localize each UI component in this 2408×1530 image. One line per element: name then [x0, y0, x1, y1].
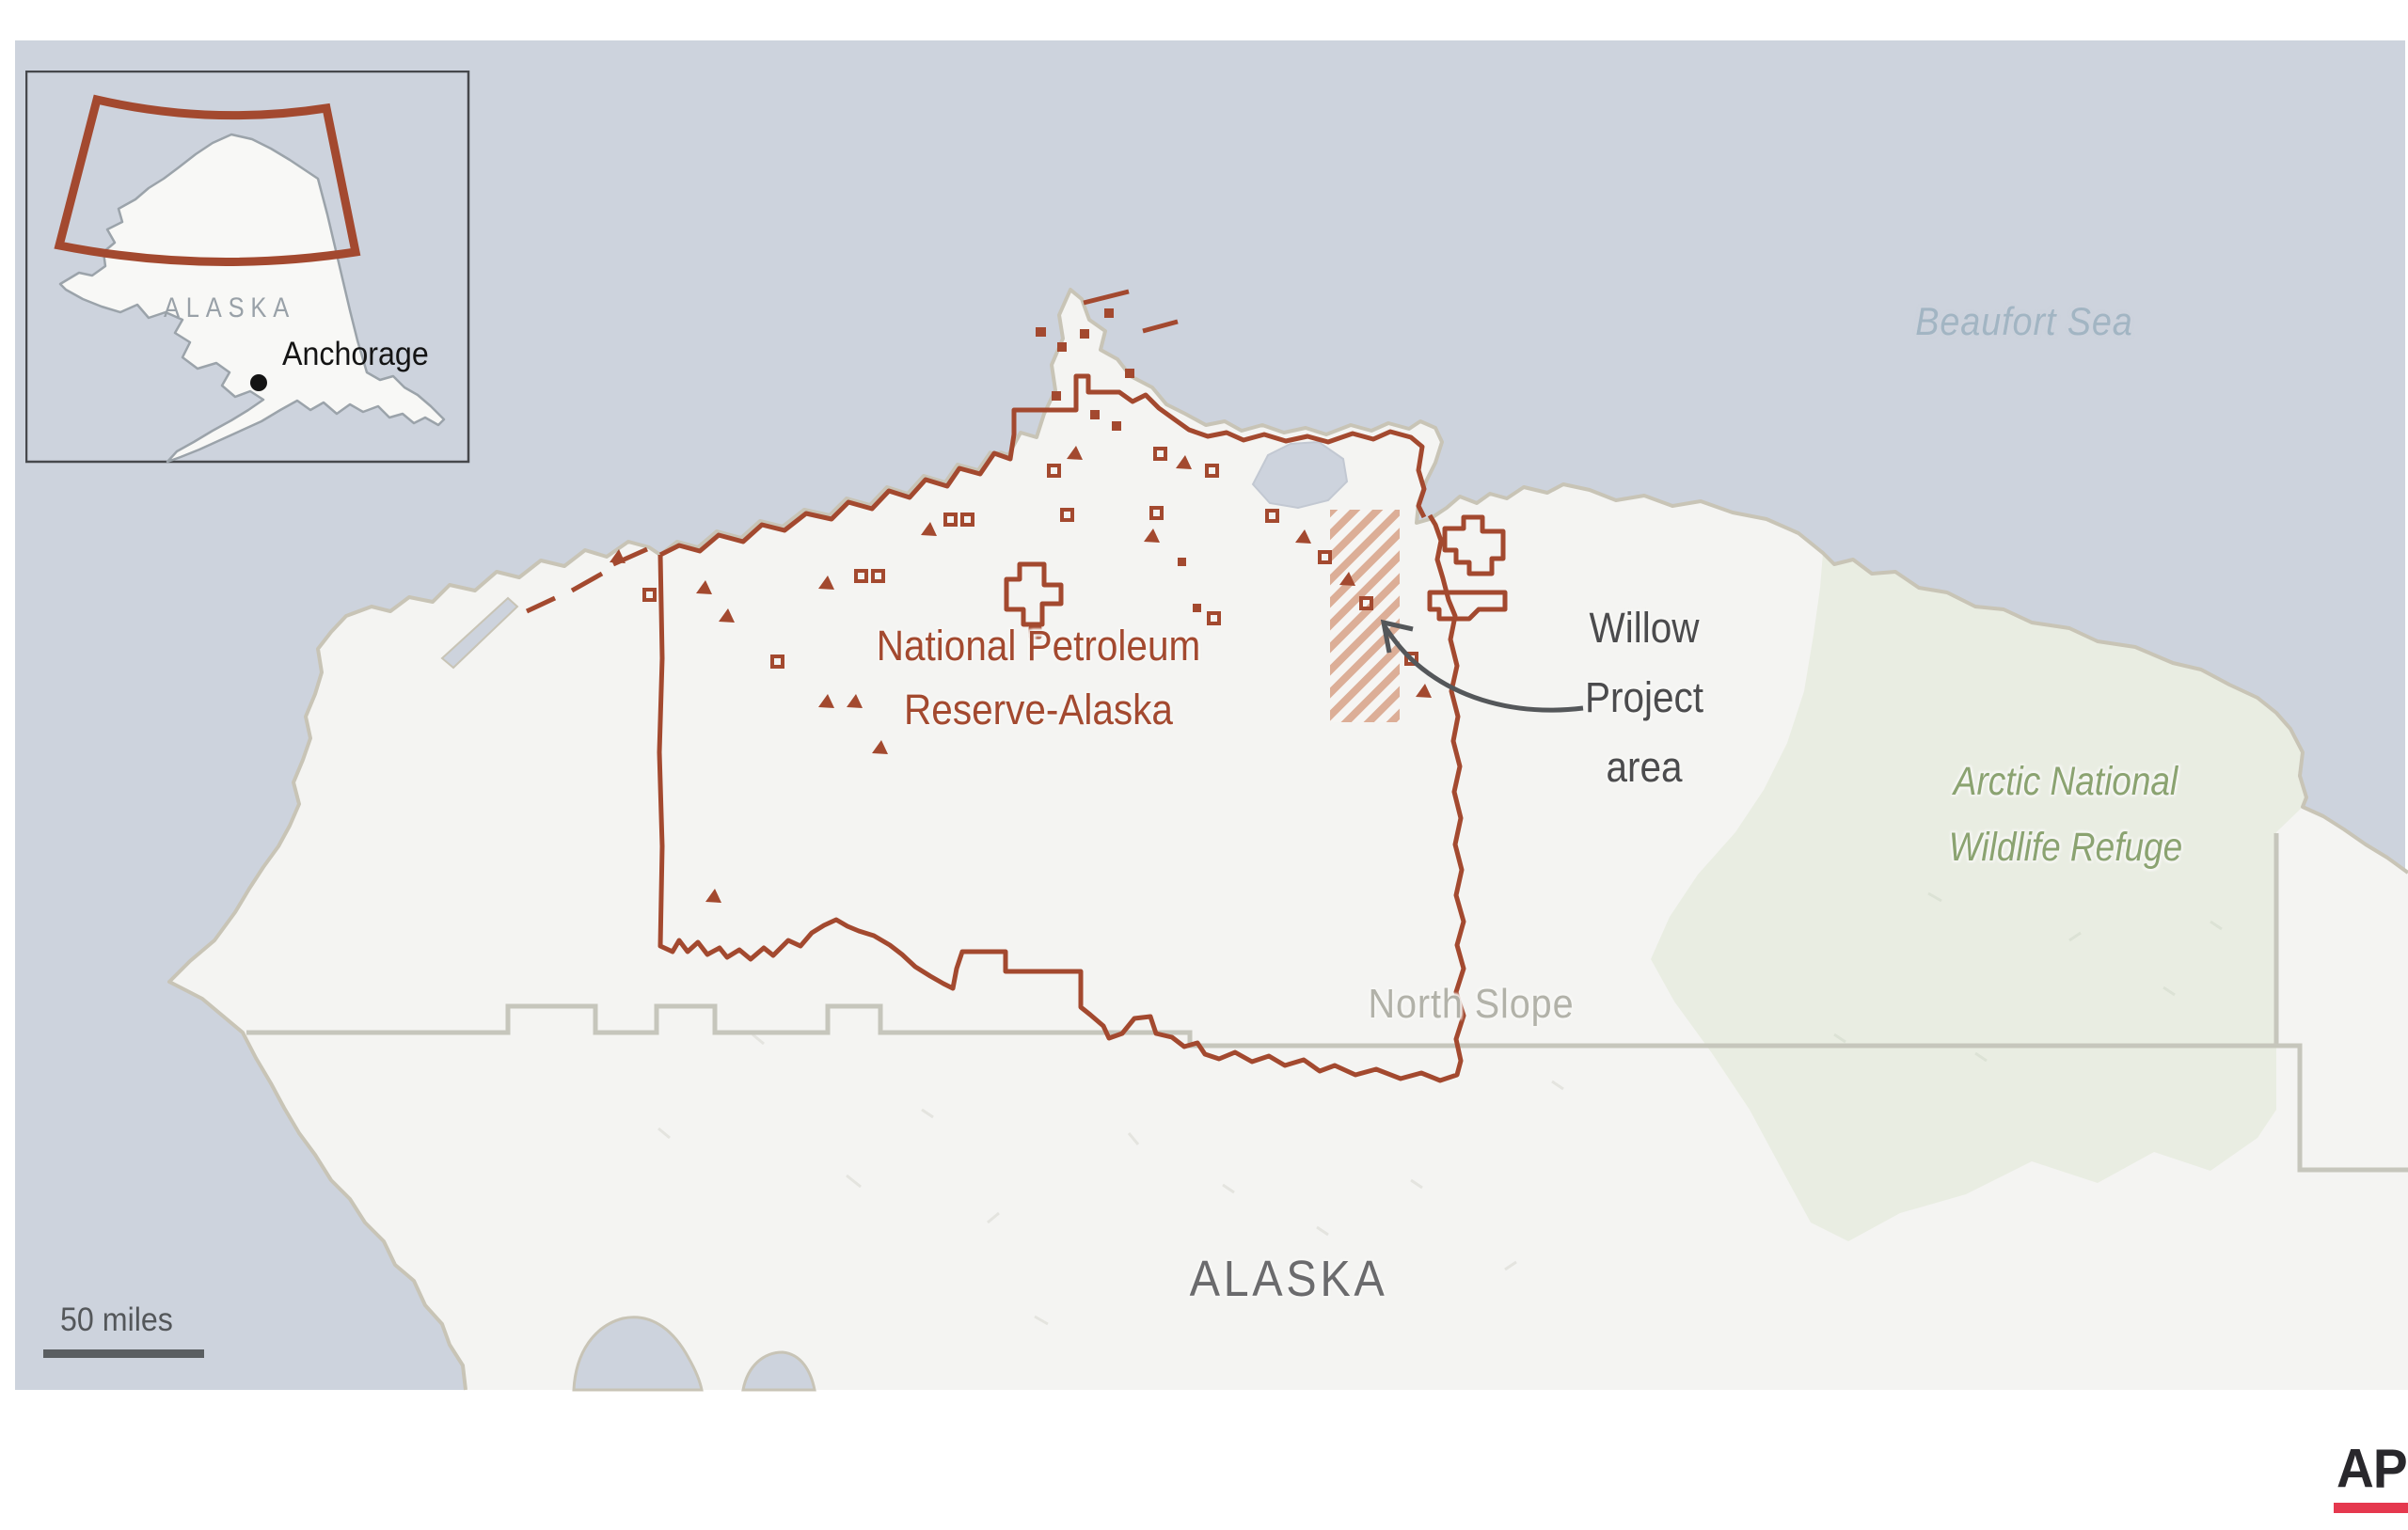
- willow-label-line3: area: [1585, 733, 1703, 802]
- arctic-refuge-label: Arctic National Wildlife Refuge: [1949, 749, 2182, 880]
- willow-project-label: Willow Project area: [1585, 593, 1703, 802]
- inset-map: [25, 71, 470, 464]
- anchorage-dot-icon: [250, 374, 267, 391]
- scale-label: 50 miles: [60, 1301, 173, 1339]
- willow-label-line2: Project: [1585, 663, 1703, 733]
- ap-map-graphic: Beaufort Sea National Petroleum Reserve-…: [0, 0, 2408, 1530]
- ap-logo-bar: [2334, 1503, 2408, 1513]
- scale-bar: [43, 1349, 204, 1358]
- small-lake: [980, 433, 1010, 451]
- beaufort-sea-label: Beaufort Sea: [1915, 299, 2132, 344]
- north-slope-label: North Slope: [1368, 981, 1574, 1028]
- npra-label-line2: Reserve-Alaska: [877, 678, 1200, 742]
- ap-logo: AP: [2337, 1438, 2407, 1501]
- anchorage-label: Anchorage: [282, 336, 429, 373]
- arctic-refuge-label-line2: Wildlife Refuge: [1949, 814, 2182, 880]
- npra-label-line1: National Petroleum: [877, 614, 1200, 678]
- alaska-label: ALASKA: [1190, 1250, 1388, 1308]
- inset-alaska-label: ALASKA: [164, 292, 295, 324]
- arctic-refuge-label-line1: Arctic National: [1949, 749, 2182, 814]
- npra-label: National Petroleum Reserve-Alaska: [877, 614, 1200, 742]
- willow-project-hatch: [1330, 510, 1400, 722]
- willow-label-line1: Willow: [1585, 593, 1703, 663]
